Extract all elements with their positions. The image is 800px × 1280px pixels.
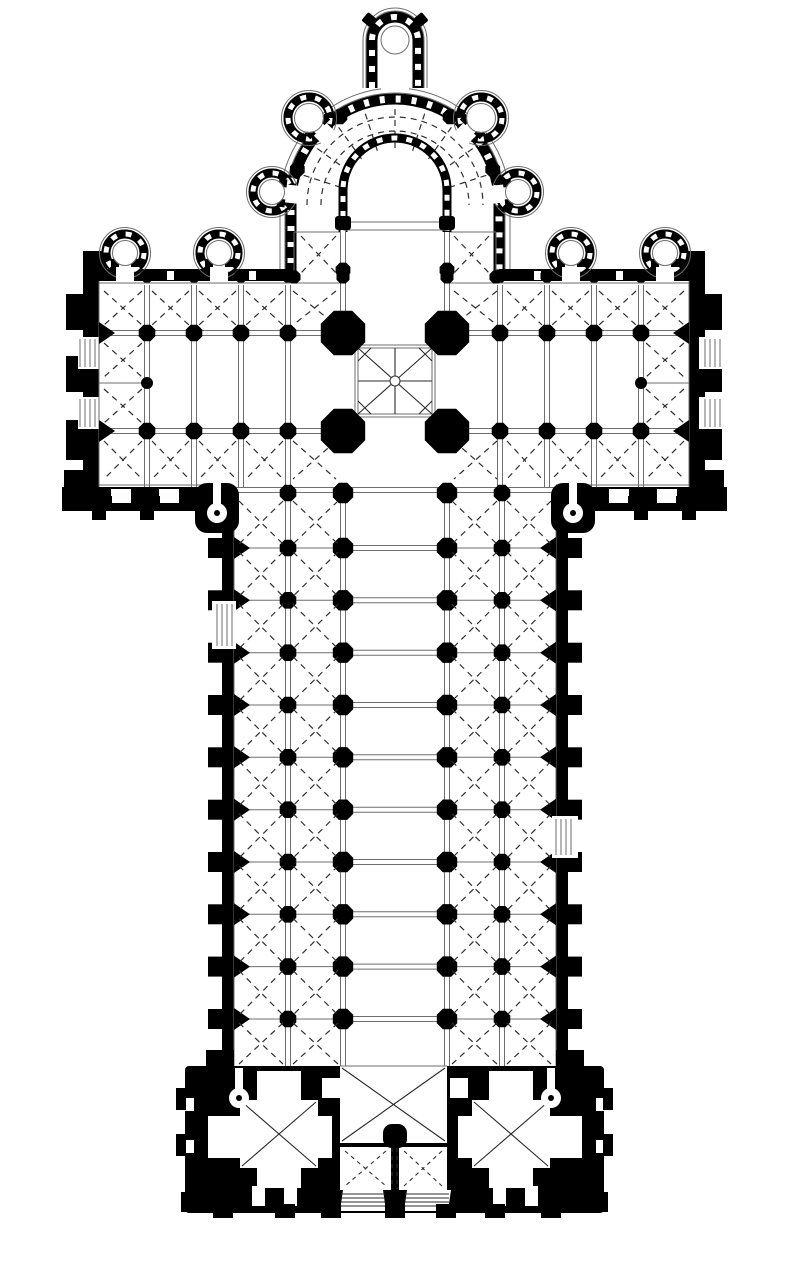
east-wall-window bbox=[534, 271, 541, 280]
chapel-floor bbox=[559, 241, 583, 265]
nave-buttress bbox=[208, 695, 222, 715]
nave-pier bbox=[333, 852, 353, 872]
crossing-pier bbox=[425, 311, 469, 355]
vault-rib bbox=[452, 501, 497, 544]
vault-rib bbox=[507, 971, 551, 1015]
vault-rib bbox=[293, 971, 338, 1015]
nave-pier bbox=[437, 643, 457, 663]
vault-rib bbox=[239, 552, 283, 596]
chapel-floor bbox=[467, 104, 495, 132]
transept-pier bbox=[139, 423, 156, 440]
nave-pier bbox=[437, 800, 457, 820]
vault-rib bbox=[246, 291, 283, 325]
portal-base bbox=[340, 1190, 386, 1211]
vault-rib bbox=[646, 343, 684, 377]
vault-rib bbox=[452, 709, 497, 753]
vault-rib bbox=[452, 918, 497, 962]
vault-rib bbox=[507, 709, 551, 753]
nave-pier bbox=[280, 906, 297, 923]
hemicycle-foot-pier bbox=[335, 216, 351, 230]
vault-rib bbox=[507, 501, 551, 544]
nave-pier bbox=[333, 1009, 353, 1029]
vault-rib bbox=[507, 657, 551, 701]
west-wall-door bbox=[111, 489, 131, 503]
wall-respond bbox=[673, 322, 689, 344]
facade-buttress bbox=[321, 1204, 341, 1218]
nave-buttress bbox=[208, 747, 222, 767]
vault-rib bbox=[293, 657, 338, 701]
cathedral-floor-plan bbox=[0, 0, 800, 1280]
vault-rib bbox=[507, 709, 551, 753]
nave-pier bbox=[494, 958, 511, 975]
ambulatory-rib bbox=[301, 174, 341, 187]
porch-side-door bbox=[450, 1078, 468, 1098]
vault-rib bbox=[239, 814, 283, 858]
nave-pier bbox=[494, 485, 511, 502]
wall-buttress bbox=[634, 490, 648, 520]
vault-rib bbox=[452, 971, 497, 1015]
apse-buttress bbox=[333, 109, 348, 124]
nave-buttress bbox=[568, 1009, 582, 1029]
tower-door bbox=[489, 1071, 533, 1101]
hemicycle-foot-pier bbox=[439, 216, 455, 230]
transept-pier bbox=[633, 423, 650, 440]
crossing-rib bbox=[395, 381, 432, 414]
vault-rib bbox=[152, 291, 189, 325]
end-buttress bbox=[705, 294, 722, 330]
nave-buttress bbox=[568, 590, 582, 610]
nave-pier bbox=[437, 1009, 457, 1029]
vault-rib bbox=[293, 709, 338, 753]
nave-pier bbox=[333, 590, 353, 610]
facade-buttress bbox=[385, 1204, 405, 1218]
vault-rib bbox=[239, 552, 283, 596]
facade-buttress bbox=[541, 1204, 561, 1218]
vault-rib bbox=[293, 761, 338, 805]
tower-notch bbox=[185, 1098, 194, 1111]
nave-pier bbox=[333, 538, 353, 558]
vault-rib bbox=[239, 709, 283, 753]
transept-pier bbox=[492, 423, 509, 440]
choir-wall-pier bbox=[490, 271, 503, 284]
east-wall-pier bbox=[541, 270, 554, 283]
facade-buttress bbox=[485, 1204, 505, 1218]
tower-door bbox=[458, 1116, 472, 1158]
choir-wall-pier bbox=[337, 271, 350, 284]
transept-end-wall bbox=[83, 269, 99, 511]
choir-wall-pier bbox=[288, 271, 301, 284]
vault-rib bbox=[293, 866, 338, 910]
facade-door bbox=[525, 1186, 538, 1206]
vault-rib bbox=[239, 971, 283, 1015]
vault-rib bbox=[452, 1023, 497, 1064]
nave-pier bbox=[437, 483, 457, 503]
ambulatory-rib bbox=[449, 174, 489, 187]
nave-pier bbox=[280, 697, 297, 714]
vault-rib bbox=[452, 814, 497, 858]
vault-rib bbox=[293, 657, 338, 701]
transept-pier bbox=[586, 423, 603, 440]
vault-rib bbox=[293, 552, 338, 596]
crossing-rib bbox=[358, 348, 395, 381]
vault-rib bbox=[293, 552, 338, 596]
nave-pier bbox=[437, 695, 457, 715]
east-wall-pier bbox=[635, 270, 648, 283]
wall-buttress bbox=[92, 490, 106, 520]
wall-respond bbox=[99, 420, 115, 442]
vault-rib bbox=[239, 604, 283, 648]
east-wall-window bbox=[249, 271, 256, 280]
vault-rib bbox=[507, 866, 551, 910]
tower-door bbox=[257, 1071, 301, 1101]
nave-buttress bbox=[208, 904, 222, 924]
nave-pier bbox=[280, 540, 297, 557]
nave-pier bbox=[494, 540, 511, 557]
vault-rib bbox=[239, 1023, 283, 1064]
nave-wall bbox=[222, 497, 234, 1068]
vault-rib bbox=[507, 866, 551, 910]
vault-rib bbox=[507, 552, 551, 596]
wall-respond bbox=[673, 420, 689, 442]
nave-pier bbox=[280, 958, 297, 975]
tower-side-buttress bbox=[603, 1134, 613, 1156]
vault-rib bbox=[452, 709, 497, 753]
vault-rib bbox=[293, 604, 338, 648]
vault-rib bbox=[293, 814, 338, 858]
nave-pier bbox=[280, 801, 297, 818]
vault-rib bbox=[293, 866, 338, 910]
vault-rib bbox=[452, 1023, 497, 1064]
vault-rib bbox=[452, 657, 497, 701]
nave-pier bbox=[333, 747, 353, 767]
nave-pier bbox=[280, 1011, 297, 1028]
nave-buttress bbox=[208, 800, 222, 820]
nave-buttress bbox=[568, 695, 582, 715]
tower-side-buttress bbox=[176, 1088, 186, 1110]
vault-rib bbox=[293, 918, 338, 962]
vault-rib bbox=[239, 709, 283, 753]
vault-rib bbox=[239, 604, 283, 648]
choir-wall-pier bbox=[441, 271, 454, 284]
east-wall-pier bbox=[141, 270, 154, 283]
vault-rib bbox=[452, 552, 497, 596]
vault-rib bbox=[239, 761, 283, 805]
vault-rib bbox=[452, 918, 497, 962]
nave-buttress bbox=[208, 1009, 222, 1029]
facade-door bbox=[252, 1186, 265, 1206]
vault-rib bbox=[452, 814, 497, 858]
facade-buttress bbox=[436, 1204, 456, 1218]
vault-rib bbox=[301, 236, 336, 273]
west-wall-door bbox=[159, 489, 179, 503]
nave-buttress bbox=[568, 957, 582, 977]
nave-pier bbox=[333, 483, 353, 503]
vault-rib bbox=[104, 343, 142, 377]
porch-side-door bbox=[322, 1078, 340, 1098]
vault-rib bbox=[239, 918, 283, 962]
vault-rib bbox=[239, 814, 283, 858]
nave-pier bbox=[494, 592, 511, 609]
vault-rib bbox=[293, 604, 338, 648]
nave-pier bbox=[333, 956, 353, 976]
vault-rib bbox=[507, 814, 551, 858]
vault-rib bbox=[507, 291, 542, 325]
vault-rib bbox=[239, 761, 283, 805]
nave-buttress bbox=[208, 852, 222, 872]
nave-buttress bbox=[208, 957, 222, 977]
westwork bbox=[176, 1050, 613, 1218]
nave-pier bbox=[494, 644, 511, 661]
transept-pier bbox=[633, 325, 650, 342]
vault-rib bbox=[293, 971, 338, 1015]
stair-newel bbox=[570, 510, 576, 516]
vault-rib bbox=[239, 501, 283, 544]
vault-rib bbox=[452, 501, 497, 544]
nave-pier bbox=[437, 538, 457, 558]
nave-pier bbox=[280, 485, 297, 502]
vault-rib bbox=[239, 657, 283, 701]
apse-chord bbox=[342, 222, 448, 230]
transept-pier bbox=[139, 325, 156, 342]
crossing-rib bbox=[395, 348, 432, 381]
vault-rib bbox=[646, 389, 684, 423]
east-wall-pier bbox=[188, 270, 201, 283]
end-buttress bbox=[66, 294, 83, 330]
vault-rib bbox=[507, 918, 551, 962]
crossing-boss bbox=[390, 376, 400, 386]
nave-pier bbox=[333, 695, 353, 715]
wall-buttress bbox=[682, 490, 696, 520]
crossing bbox=[321, 311, 469, 453]
nave-buttress bbox=[568, 538, 582, 558]
chapel-floor bbox=[653, 241, 677, 265]
stair-newel bbox=[236, 1095, 242, 1101]
vault-rib bbox=[293, 709, 338, 753]
nave-pier bbox=[280, 854, 297, 871]
nave-buttress bbox=[568, 904, 582, 924]
vault-rib bbox=[507, 918, 551, 962]
axial-chapel-opening bbox=[381, 78, 409, 91]
nave-pier bbox=[437, 747, 457, 767]
vault-rib bbox=[104, 389, 142, 423]
nave-pier bbox=[280, 644, 297, 661]
nave-pier bbox=[494, 854, 511, 871]
east-wall-pier bbox=[588, 270, 601, 283]
chevet bbox=[247, 8, 544, 279]
facade-buttress bbox=[213, 1204, 233, 1218]
east-wall-window bbox=[616, 271, 623, 280]
vault-rib bbox=[293, 814, 338, 858]
vault-rib bbox=[599, 291, 636, 325]
vault-rib bbox=[452, 761, 497, 805]
chapel-floor bbox=[207, 241, 231, 265]
vault-rib bbox=[239, 866, 283, 910]
tower-notch bbox=[185, 1140, 194, 1153]
vault-rib bbox=[452, 604, 497, 648]
apse-buttress bbox=[485, 162, 500, 177]
chapel-floor bbox=[506, 180, 530, 204]
transept-pier bbox=[186, 325, 203, 342]
vault-rib bbox=[452, 971, 497, 1015]
vault-rib bbox=[239, 1023, 283, 1064]
tower-door bbox=[549, 1116, 582, 1158]
hemicycle-outline bbox=[339, 134, 451, 232]
transept-pier bbox=[539, 423, 556, 440]
vault-rib bbox=[507, 971, 551, 1015]
vault-rib bbox=[507, 441, 542, 479]
nave-pier bbox=[437, 956, 457, 976]
end-bay-column bbox=[141, 377, 153, 389]
nave-pier bbox=[494, 1011, 511, 1028]
nave-pier bbox=[280, 749, 297, 766]
transept-pier bbox=[280, 325, 297, 342]
chapel-floor bbox=[295, 104, 323, 132]
chapel-floor bbox=[113, 241, 137, 265]
transept-pier bbox=[586, 325, 603, 342]
nave-pier bbox=[437, 852, 457, 872]
nave-pier bbox=[437, 904, 457, 924]
transept-pier bbox=[233, 325, 250, 342]
tower-side-buttress bbox=[603, 1088, 613, 1110]
nave-pier bbox=[494, 906, 511, 923]
tower-door bbox=[318, 1116, 332, 1158]
wall-respond bbox=[99, 322, 115, 344]
vault-rib bbox=[293, 918, 338, 962]
choir bbox=[335, 216, 455, 327]
facade-corner-buttress bbox=[586, 1192, 608, 1212]
vault-rib bbox=[452, 604, 497, 648]
apse-buttress bbox=[290, 162, 305, 177]
nave-wall bbox=[556, 497, 568, 1068]
nave-pier bbox=[494, 697, 511, 714]
vault-rib bbox=[454, 236, 489, 273]
nave-buttress bbox=[568, 643, 582, 663]
vault-rib bbox=[507, 1023, 551, 1064]
tower-door bbox=[257, 1168, 301, 1188]
vault-rib bbox=[507, 657, 551, 701]
end-bay-column bbox=[635, 377, 647, 389]
stair-newel bbox=[548, 1095, 554, 1101]
vault-rib bbox=[452, 761, 497, 805]
crossing-rib bbox=[358, 381, 395, 414]
transept-end-wall bbox=[689, 269, 705, 511]
facade-corner-buttress bbox=[181, 1192, 203, 1212]
nave bbox=[195, 483, 595, 1068]
nave-pier bbox=[494, 801, 511, 818]
vault-rib bbox=[293, 501, 338, 544]
nave-pier bbox=[333, 800, 353, 820]
vault-rib bbox=[452, 657, 497, 701]
apse-buttress bbox=[443, 109, 458, 124]
vault-rib bbox=[239, 657, 283, 701]
crossing-pier bbox=[425, 409, 469, 453]
stair-newel bbox=[214, 510, 220, 516]
vault-rib bbox=[293, 1023, 338, 1064]
hemicycle-arcade bbox=[343, 138, 447, 232]
nave-pier bbox=[494, 749, 511, 766]
vault-rib bbox=[507, 552, 551, 596]
facade-door bbox=[284, 1186, 297, 1206]
nave-pier bbox=[437, 590, 457, 610]
nave-buttress bbox=[568, 747, 582, 767]
vault-rib bbox=[293, 1023, 338, 1064]
chapel-floor bbox=[260, 180, 284, 204]
trumeau-pier bbox=[383, 1124, 407, 1148]
west-wall-door bbox=[657, 489, 677, 503]
vault-rib bbox=[452, 552, 497, 596]
nave-pier bbox=[333, 643, 353, 663]
crossing-pier bbox=[321, 311, 365, 355]
vault-rib bbox=[239, 971, 283, 1015]
nave-pier bbox=[280, 592, 297, 609]
vault-rib bbox=[239, 866, 283, 910]
east-wall-pier bbox=[235, 270, 248, 283]
vault-rib bbox=[507, 761, 551, 805]
tower-door bbox=[489, 1168, 533, 1188]
vault-rib bbox=[452, 866, 497, 910]
vault-rib bbox=[507, 814, 551, 858]
vault-rib bbox=[239, 501, 283, 544]
transept-pier bbox=[233, 423, 250, 440]
floor-plan-svg bbox=[0, 0, 800, 1280]
vault-rib bbox=[507, 1023, 551, 1064]
tower-side-buttress bbox=[176, 1134, 186, 1156]
facade-door bbox=[493, 1186, 506, 1206]
facade-buttress bbox=[275, 1204, 295, 1218]
transept-pier bbox=[280, 423, 297, 440]
tower-door bbox=[208, 1116, 241, 1158]
transept-pier bbox=[186, 423, 203, 440]
west-wall-door bbox=[609, 489, 629, 503]
crossing-pier bbox=[321, 409, 365, 453]
wall-buttress bbox=[140, 490, 154, 520]
vault-rib bbox=[452, 866, 497, 910]
nave-buttress bbox=[208, 538, 222, 558]
vault-rib bbox=[239, 918, 283, 962]
vault-rib bbox=[507, 501, 551, 544]
vault-rib bbox=[293, 761, 338, 805]
vault-rib bbox=[507, 604, 551, 648]
vault-rib bbox=[293, 501, 338, 544]
nave-pier bbox=[333, 904, 353, 924]
east-wall-window bbox=[167, 271, 174, 280]
transept-pier bbox=[492, 325, 509, 342]
vault-rib bbox=[507, 604, 551, 648]
vault-rib bbox=[507, 761, 551, 805]
transept-pier bbox=[539, 325, 556, 342]
